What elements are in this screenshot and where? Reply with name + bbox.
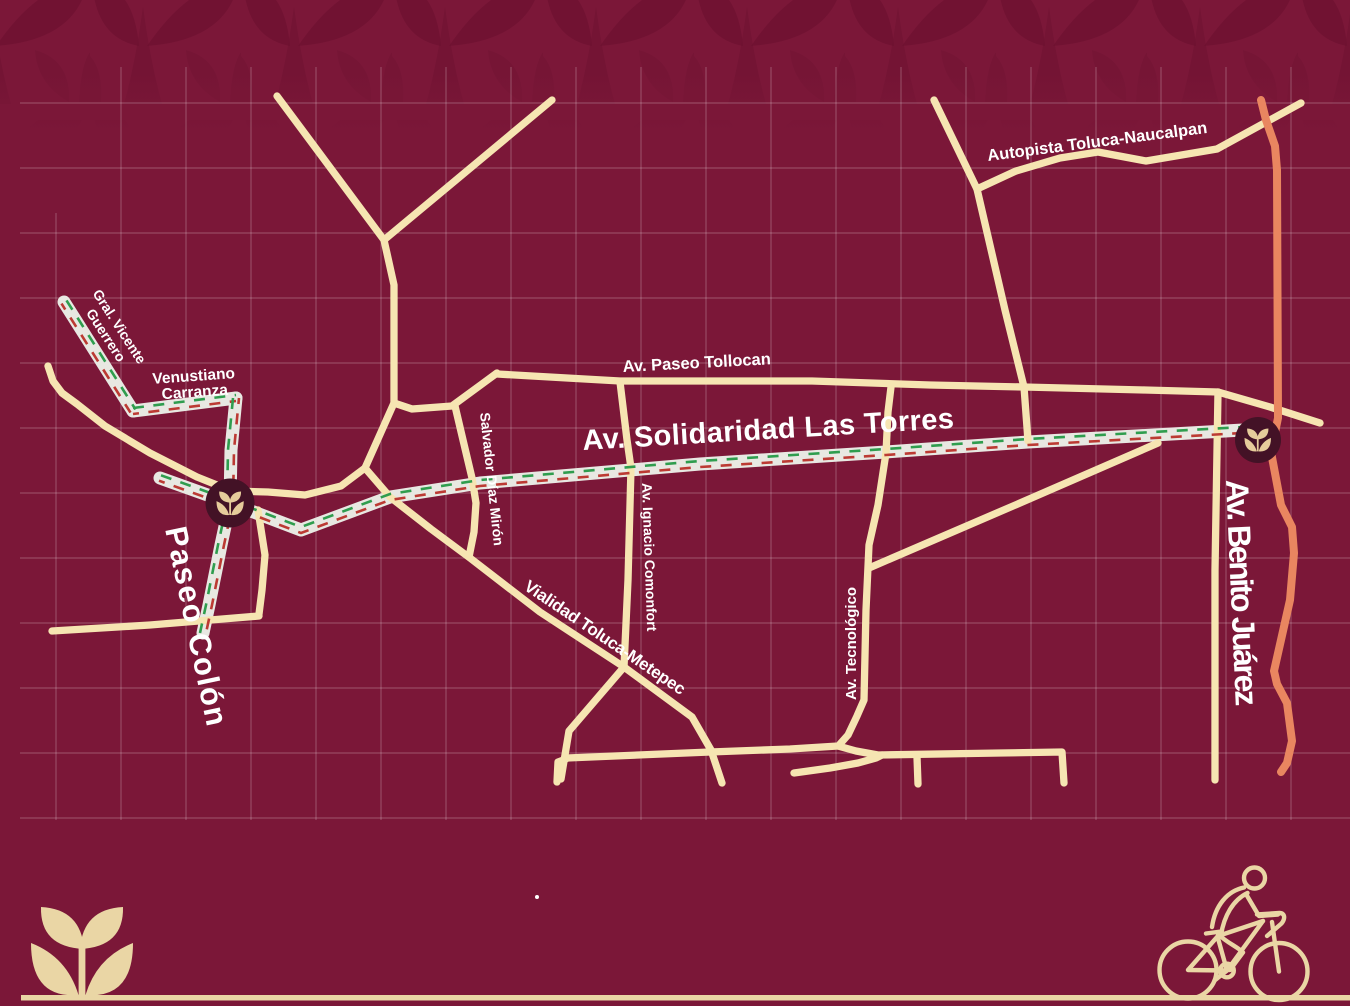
svg-text:Av. Tecnológico: Av. Tecnológico xyxy=(843,587,860,700)
